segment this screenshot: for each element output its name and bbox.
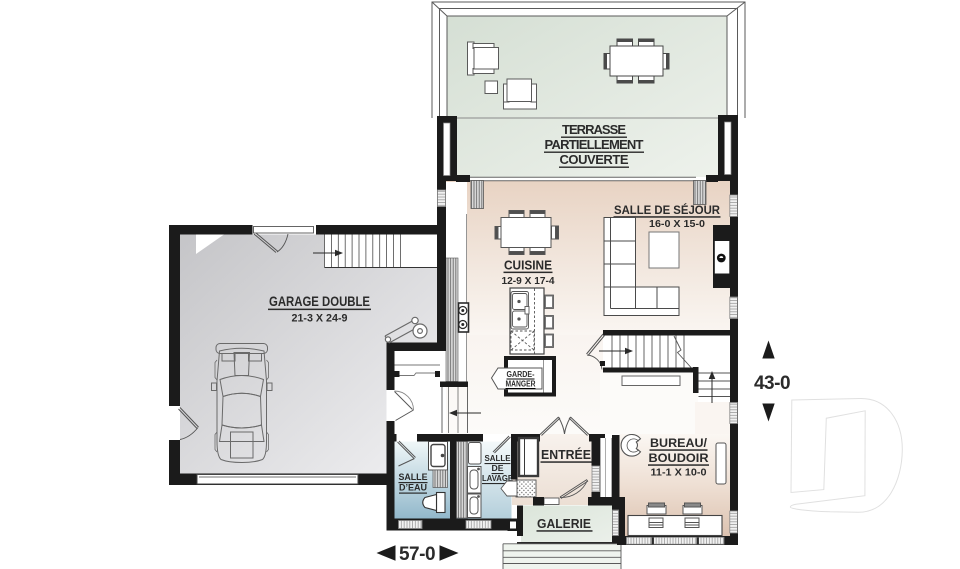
svg-text:MANGER: MANGER: [506, 380, 536, 389]
svg-text:DE: DE: [492, 463, 504, 473]
svg-text:GARDE-: GARDE-: [507, 370, 535, 379]
svg-text:21-3 X 24-9: 21-3 X 24-9: [292, 313, 348, 325]
svg-text:43-0: 43-0: [754, 373, 790, 394]
svg-text:CUISINE: CUISINE: [504, 258, 552, 272]
svg-text:SALLE: SALLE: [399, 472, 428, 482]
svg-text:PARTIELLEMENT: PARTIELLEMENT: [545, 137, 644, 152]
svg-text:11-1 X 10-0: 11-1 X 10-0: [651, 468, 707, 479]
svg-text:ENTRÉE: ENTRÉE: [541, 447, 591, 462]
svg-text:BUREAU/: BUREAU/: [650, 438, 708, 450]
svg-text:BOUDOIR: BOUDOIR: [649, 453, 710, 465]
svg-text:16-0 X 15-0: 16-0 X 15-0: [649, 219, 705, 230]
svg-text:COUVERTE: COUVERTE: [560, 152, 629, 167]
svg-text:SALLE DE SÉJOUR: SALLE DE SÉJOUR: [614, 202, 720, 217]
svg-text:57-0: 57-0: [399, 544, 435, 565]
svg-text:GARAGE DOUBLE: GARAGE DOUBLE: [269, 293, 370, 309]
svg-text:TERRASSE: TERRASSE: [562, 122, 626, 137]
svg-text:D’EAU: D’EAU: [399, 483, 427, 493]
svg-text:12-9 X 17-4: 12-9 X 17-4: [502, 276, 555, 287]
svg-text:SALLE: SALLE: [485, 453, 511, 463]
svg-text:GALERIE: GALERIE: [537, 517, 591, 531]
